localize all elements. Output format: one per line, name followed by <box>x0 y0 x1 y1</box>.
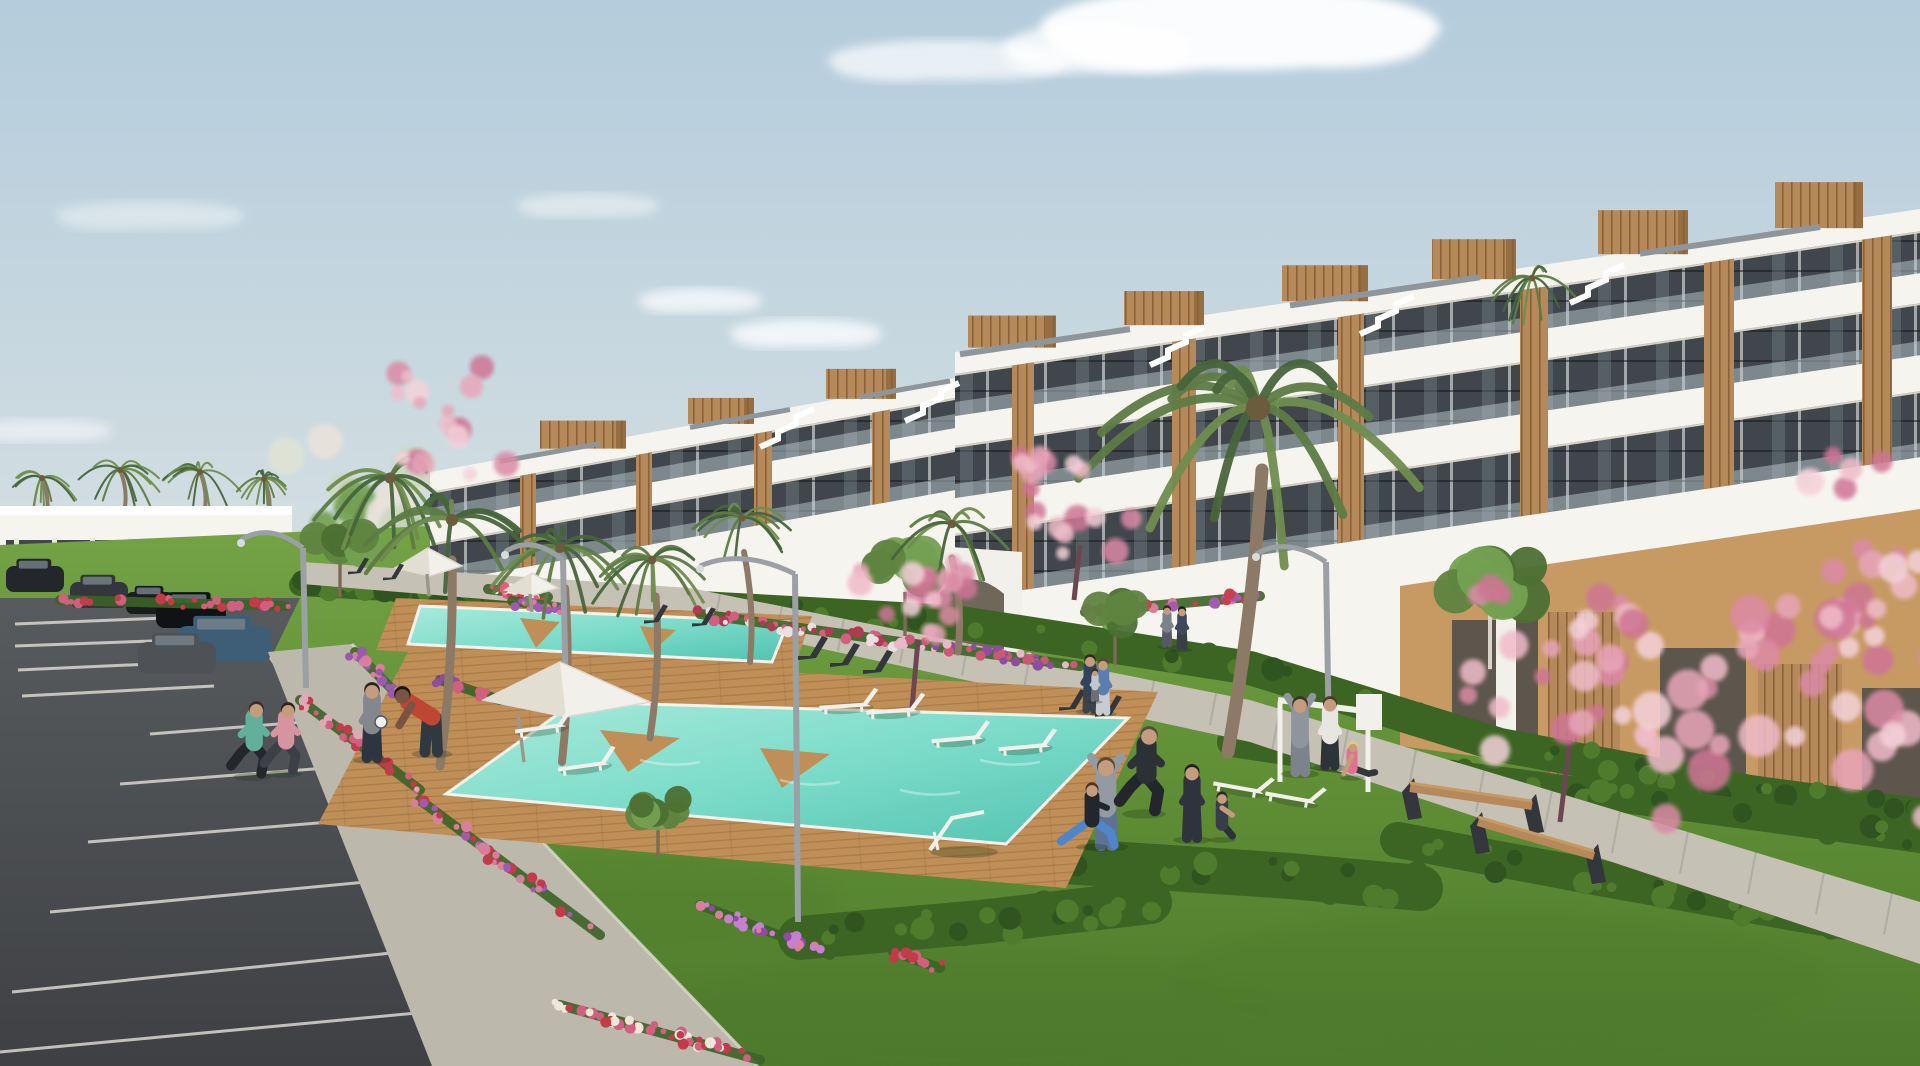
render-viewport <box>0 0 1920 1066</box>
cloud <box>638 288 762 313</box>
resort-complex-render <box>0 0 1920 1066</box>
cloud <box>828 40 1068 81</box>
cloud <box>55 201 245 230</box>
rooftop-wood-box <box>1432 239 1516 279</box>
soccer-ball <box>375 716 387 728</box>
cloud <box>516 193 660 218</box>
rooftop-wood-box <box>1124 291 1204 325</box>
cloud <box>730 319 882 348</box>
rooftop-wood-box <box>1775 182 1863 228</box>
